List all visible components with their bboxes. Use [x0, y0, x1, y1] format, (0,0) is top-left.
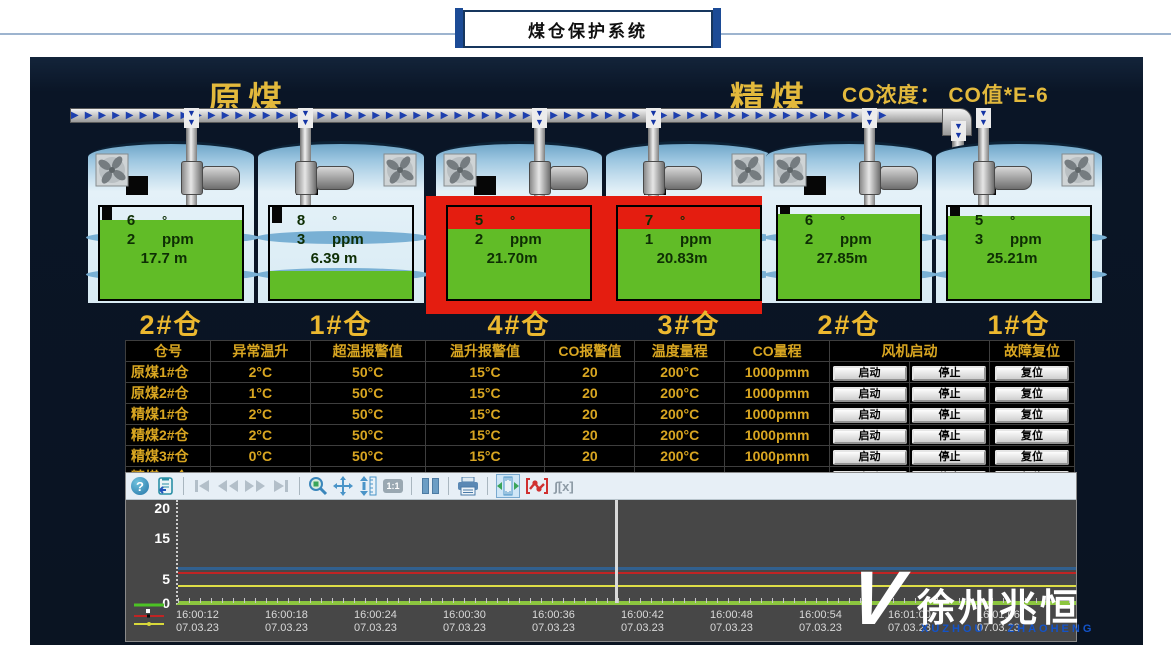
- fault-reset-button[interactable]: 复位: [995, 387, 1069, 402]
- down-arrow-icon: ▼▼: [184, 108, 199, 128]
- pause-button[interactable]: [420, 475, 440, 497]
- vendor-watermark: V 徐州兆恒 XUZHOUZHAOHENG: [851, 569, 1127, 641]
- co-unit: ppm: [680, 230, 712, 249]
- pan-button[interactable]: [333, 475, 353, 497]
- rise-alarm-value: 15°C: [425, 404, 545, 425]
- fan-icon: [773, 153, 807, 187]
- temp-unit: °: [840, 211, 845, 230]
- tank-level-value: 6.39 m: [270, 249, 412, 268]
- integral-button[interactable]: ∫[x]: [554, 475, 574, 497]
- tank-readout: 8° 3ppm 6.39 m: [268, 205, 414, 301]
- tank-readout: 6° 2ppm 27.85m: [776, 205, 922, 301]
- down-arrow-icon: ▼▼: [951, 121, 966, 141]
- vendor-logo: V: [845, 555, 908, 642]
- over-temp-value: 50°C: [310, 425, 425, 446]
- temp-range-value: 200°C: [635, 446, 725, 467]
- table-row: 原煤2#仓 1°C 50°C 15°C 20 200°C 1000pmm 启动 …: [126, 383, 1075, 404]
- help-button[interactable]: ?: [130, 475, 150, 497]
- temp-range-value: 200°C: [635, 362, 725, 383]
- motor-icon: [316, 166, 354, 190]
- tank-co-value: 2: [778, 230, 840, 249]
- rise-alarm-value: 15°C: [425, 383, 545, 404]
- tank-level-value: 20.83m: [618, 249, 760, 268]
- temp-unit: °: [510, 211, 515, 230]
- valve-icon: [295, 161, 317, 195]
- tank-temp-value: 5: [948, 211, 1010, 230]
- tank-level-value: 25.21m: [948, 249, 1090, 268]
- bin-name: 精煤1#仓: [126, 404, 211, 425]
- co-unit: ppm: [840, 230, 872, 249]
- co-alarm-value: 20: [545, 404, 635, 425]
- valve-icon: [529, 161, 551, 195]
- fast-backward-button[interactable]: [217, 475, 239, 497]
- y-tick-label: 5: [126, 571, 170, 587]
- temp-range-value: 200°C: [635, 404, 725, 425]
- zoom-button[interactable]: [308, 475, 328, 497]
- co-unit: ppm: [332, 230, 364, 249]
- co-concentration-note: CO浓度： CO值*E-6: [842, 79, 1049, 109]
- fan-stop-button[interactable]: 停止: [912, 429, 986, 444]
- table-row: 精煤3#仓 0°C 50°C 15°C 20 200°C 1000pmm 启动 …: [126, 446, 1075, 467]
- bin-name: 精煤3#仓: [126, 446, 211, 467]
- down-arrow-icon: ▼▼: [532, 108, 547, 128]
- table-row: 原煤1#仓 2°C 50°C 15°C 20 200°C 1000pmm 启动 …: [126, 362, 1075, 383]
- temp-unit: °: [162, 211, 167, 230]
- motor-icon: [550, 166, 588, 190]
- title-accent-bar-right: [713, 8, 721, 48]
- fault-reset-button[interactable]: 复位: [995, 366, 1069, 381]
- chart-cursor[interactable]: [615, 500, 618, 603]
- motor-icon: [994, 166, 1032, 190]
- co-alarm-value: 20: [545, 425, 635, 446]
- co-range-value: 1000pmm: [725, 383, 830, 404]
- tank-clean-1: ▼▼ 5° 3ppm 25.21m 1#仓: [936, 135, 1102, 300]
- co-range-value: 1000pmm: [725, 446, 830, 467]
- rise-value: 2°C: [210, 425, 310, 446]
- tank-clean-3: ▼▼ 7° 1ppm 20.83m 3#仓: [606, 135, 772, 300]
- tank-co-value: 3: [948, 230, 1010, 249]
- co-alarm-value: 20: [545, 383, 635, 404]
- tank-temp-value: 7: [618, 211, 680, 230]
- valve-icon: [181, 161, 203, 195]
- level-fill: [270, 271, 412, 299]
- co-unit: ppm: [162, 230, 194, 249]
- col-temp-range: 温度量程: [635, 341, 725, 362]
- co-range-value: 1000pmm: [725, 362, 830, 383]
- conveyor-pipe: ▶▶▶▶▶▶▶▶▶▶▶▶▶▶▶▶▶▶▶▶▶▶▶▶▶▶▶▶▶▶▶▶▶▶▶▶▶▶▶▶…: [70, 108, 956, 123]
- table-row: 精煤1#仓 2°C 50°C 15°C 20 200°C 1000pmm 启动 …: [126, 404, 1075, 425]
- fan-icon: [1061, 153, 1095, 187]
- over-temp-value: 50°C: [310, 383, 425, 404]
- motor-icon: [880, 166, 918, 190]
- col-over: 超温报警值: [310, 341, 425, 362]
- fan-stop-button[interactable]: 停止: [912, 408, 986, 423]
- down-arrow-icon: ▼▼: [298, 108, 313, 128]
- col-fan-start: 风机启动: [830, 341, 990, 362]
- temp-range-value: 200°C: [635, 383, 725, 404]
- bin-name: 原煤2#仓: [126, 383, 211, 404]
- tank-label: 1#仓: [936, 303, 1102, 342]
- chart-toolbar: ? 1:1 ∫[x]: [126, 473, 1076, 500]
- co-unit: ppm: [510, 230, 542, 249]
- tank-temp-value: 5: [448, 211, 510, 230]
- valve-icon: [859, 161, 881, 195]
- y-tick-label: 15: [126, 530, 170, 546]
- title-accent-bar-left: [455, 8, 463, 48]
- fan-icon: [95, 153, 129, 187]
- go-first-button[interactable]: [192, 475, 212, 497]
- page-title-box: 煤仓保护系统: [463, 10, 713, 48]
- tank-co-value: 2: [448, 230, 510, 249]
- parameter-table: 仓号 异常温升 超温报警值 温升报警值 CO报警值 温度量程 CO量程 风机启动…: [125, 340, 1075, 488]
- coal-bunker-protection-hmi: 煤仓保护系统 原煤 精煤 CO浓度： CO值*E-6 ▶▶▶▶▶▶▶▶▶▶▶▶▶…: [0, 0, 1171, 652]
- fan-icon: [443, 153, 477, 187]
- fan-start-button[interactable]: 启动: [833, 450, 907, 465]
- tank-readout: 5° 2ppm 21.70m: [446, 205, 592, 301]
- pen-legend-icon[interactable]: [132, 600, 166, 633]
- bin-name: 原煤1#仓: [126, 362, 211, 383]
- print-button[interactable]: [457, 475, 479, 497]
- fan-start-button[interactable]: 启动: [833, 366, 907, 381]
- fan-start-button[interactable]: 启动: [833, 408, 907, 423]
- tank-co-value: 1: [618, 230, 680, 249]
- down-arrow-icon: ▼▼: [976, 108, 991, 128]
- table-header-row: 仓号 异常温升 超温报警值 温升报警值 CO报警值 温度量程 CO量程 风机启动…: [126, 341, 1075, 362]
- y-tick-label: 20: [126, 500, 170, 516]
- tank-level-value: 21.70m: [448, 249, 590, 268]
- over-temp-value: 50°C: [310, 362, 425, 383]
- fan-start-button[interactable]: 启动: [833, 429, 907, 444]
- table-row: 精煤2#仓 2°C 50°C 15°C 20 200°C 1000pmm 启动 …: [126, 425, 1075, 446]
- horizontal-scale-button[interactable]: [496, 474, 520, 498]
- rise-alarm-value: 15°C: [425, 446, 545, 467]
- vendor-name-en: XUZHOUZHAOHENG: [921, 623, 1094, 635]
- temp-unit: °: [680, 211, 685, 230]
- rise-value: 2°C: [210, 404, 310, 425]
- fast-forward-button[interactable]: [244, 475, 266, 497]
- motor-icon: [202, 166, 240, 190]
- tank-label: 3#仓: [606, 303, 772, 342]
- fan-icon: [383, 153, 417, 187]
- col-rise-alarm: 温升报警值: [425, 341, 545, 362]
- tank-co-value: 3: [270, 230, 332, 249]
- temp-range-value: 200°C: [635, 425, 725, 446]
- tank-temp-value: 8: [270, 211, 332, 230]
- down-arrow-icon: ▼▼: [862, 108, 877, 128]
- tank-clean-4: ▼▼ 5° 2ppm 21.70m 4#仓: [436, 135, 602, 300]
- vertical-scale-button[interactable]: [358, 475, 378, 497]
- valve-icon: [973, 161, 995, 195]
- tank-level-value: 17.7 m: [100, 249, 242, 268]
- fan-stop-button[interactable]: 停止: [912, 366, 986, 381]
- col-fault-reset: 故障复位: [989, 341, 1074, 362]
- fan-start-button[interactable]: 启动: [833, 387, 907, 402]
- tank-clean-2: ▼▼ 6° 2ppm 27.85m 2#仓: [766, 135, 932, 300]
- tank-raw-2: ▼▼ 6° 2ppm 17.7 m 2#仓: [88, 135, 254, 300]
- fan-stop-button[interactable]: 停止: [912, 450, 986, 465]
- col-co-alarm: CO报警值: [545, 341, 635, 362]
- one-to-one-button[interactable]: 1:1: [383, 475, 403, 497]
- page-title: 煤仓保护系统: [528, 17, 648, 42]
- co-alarm-value: 20: [545, 362, 635, 383]
- temp-unit: °: [332, 211, 337, 230]
- fault-reset-button[interactable]: 复位: [995, 408, 1069, 423]
- valve-icon: [643, 161, 665, 195]
- tank-readout: 6° 2ppm 17.7 m: [98, 205, 244, 301]
- export-report-button[interactable]: [155, 475, 175, 497]
- fan-icon: [731, 153, 765, 187]
- tank-raw-1: ▼▼ 8° 3ppm 6.39 m 1#仓: [258, 135, 424, 300]
- tank-label: 1#仓: [258, 303, 424, 342]
- col-rise: 异常温升: [210, 341, 310, 362]
- co-unit: ppm: [1010, 230, 1042, 249]
- over-temp-value: 50°C: [310, 404, 425, 425]
- go-last-button[interactable]: [271, 475, 291, 497]
- co-range-value: 1000pmm: [725, 404, 830, 425]
- tank-readout: 5° 3ppm 25.21m: [946, 205, 1092, 301]
- tank-readout: 7° 1ppm 20.83m: [616, 205, 762, 301]
- tank-level-value: 27.85m: [778, 249, 920, 268]
- fault-reset-button[interactable]: 复位: [995, 429, 1069, 444]
- trend-curve-button[interactable]: [525, 475, 549, 497]
- tank-label: 2#仓: [766, 303, 932, 342]
- over-temp-value: 50°C: [310, 446, 425, 467]
- col-bin: 仓号: [126, 341, 211, 362]
- rise-alarm-value: 15°C: [425, 362, 545, 383]
- rise-value: 1°C: [210, 383, 310, 404]
- rise-value: 0°C: [210, 446, 310, 467]
- tank-label: 4#仓: [436, 303, 602, 342]
- down-arrow-icon: ▼▼: [646, 108, 661, 128]
- tank-temp-value: 6: [100, 211, 162, 230]
- rise-value: 2°C: [210, 362, 310, 383]
- motor-icon: [664, 166, 702, 190]
- rise-alarm-value: 15°C: [425, 425, 545, 446]
- tank-temp-value: 6: [778, 211, 840, 230]
- col-co-range: CO量程: [725, 341, 830, 362]
- co-alarm-value: 20: [545, 446, 635, 467]
- temp-unit: °: [1010, 211, 1015, 230]
- tank-co-value: 2: [100, 230, 162, 249]
- mimic-panel: 原煤 精煤 CO浓度： CO值*E-6 ▶▶▶▶▶▶▶▶▶▶▶▶▶▶▶▶▶▶▶▶…: [30, 57, 1143, 645]
- tank-label: 2#仓: [88, 303, 254, 342]
- bin-name: 精煤2#仓: [126, 425, 211, 446]
- co-range-value: 1000pmm: [725, 425, 830, 446]
- fan-stop-button[interactable]: 停止: [912, 387, 986, 402]
- fault-reset-button[interactable]: 复位: [995, 450, 1069, 465]
